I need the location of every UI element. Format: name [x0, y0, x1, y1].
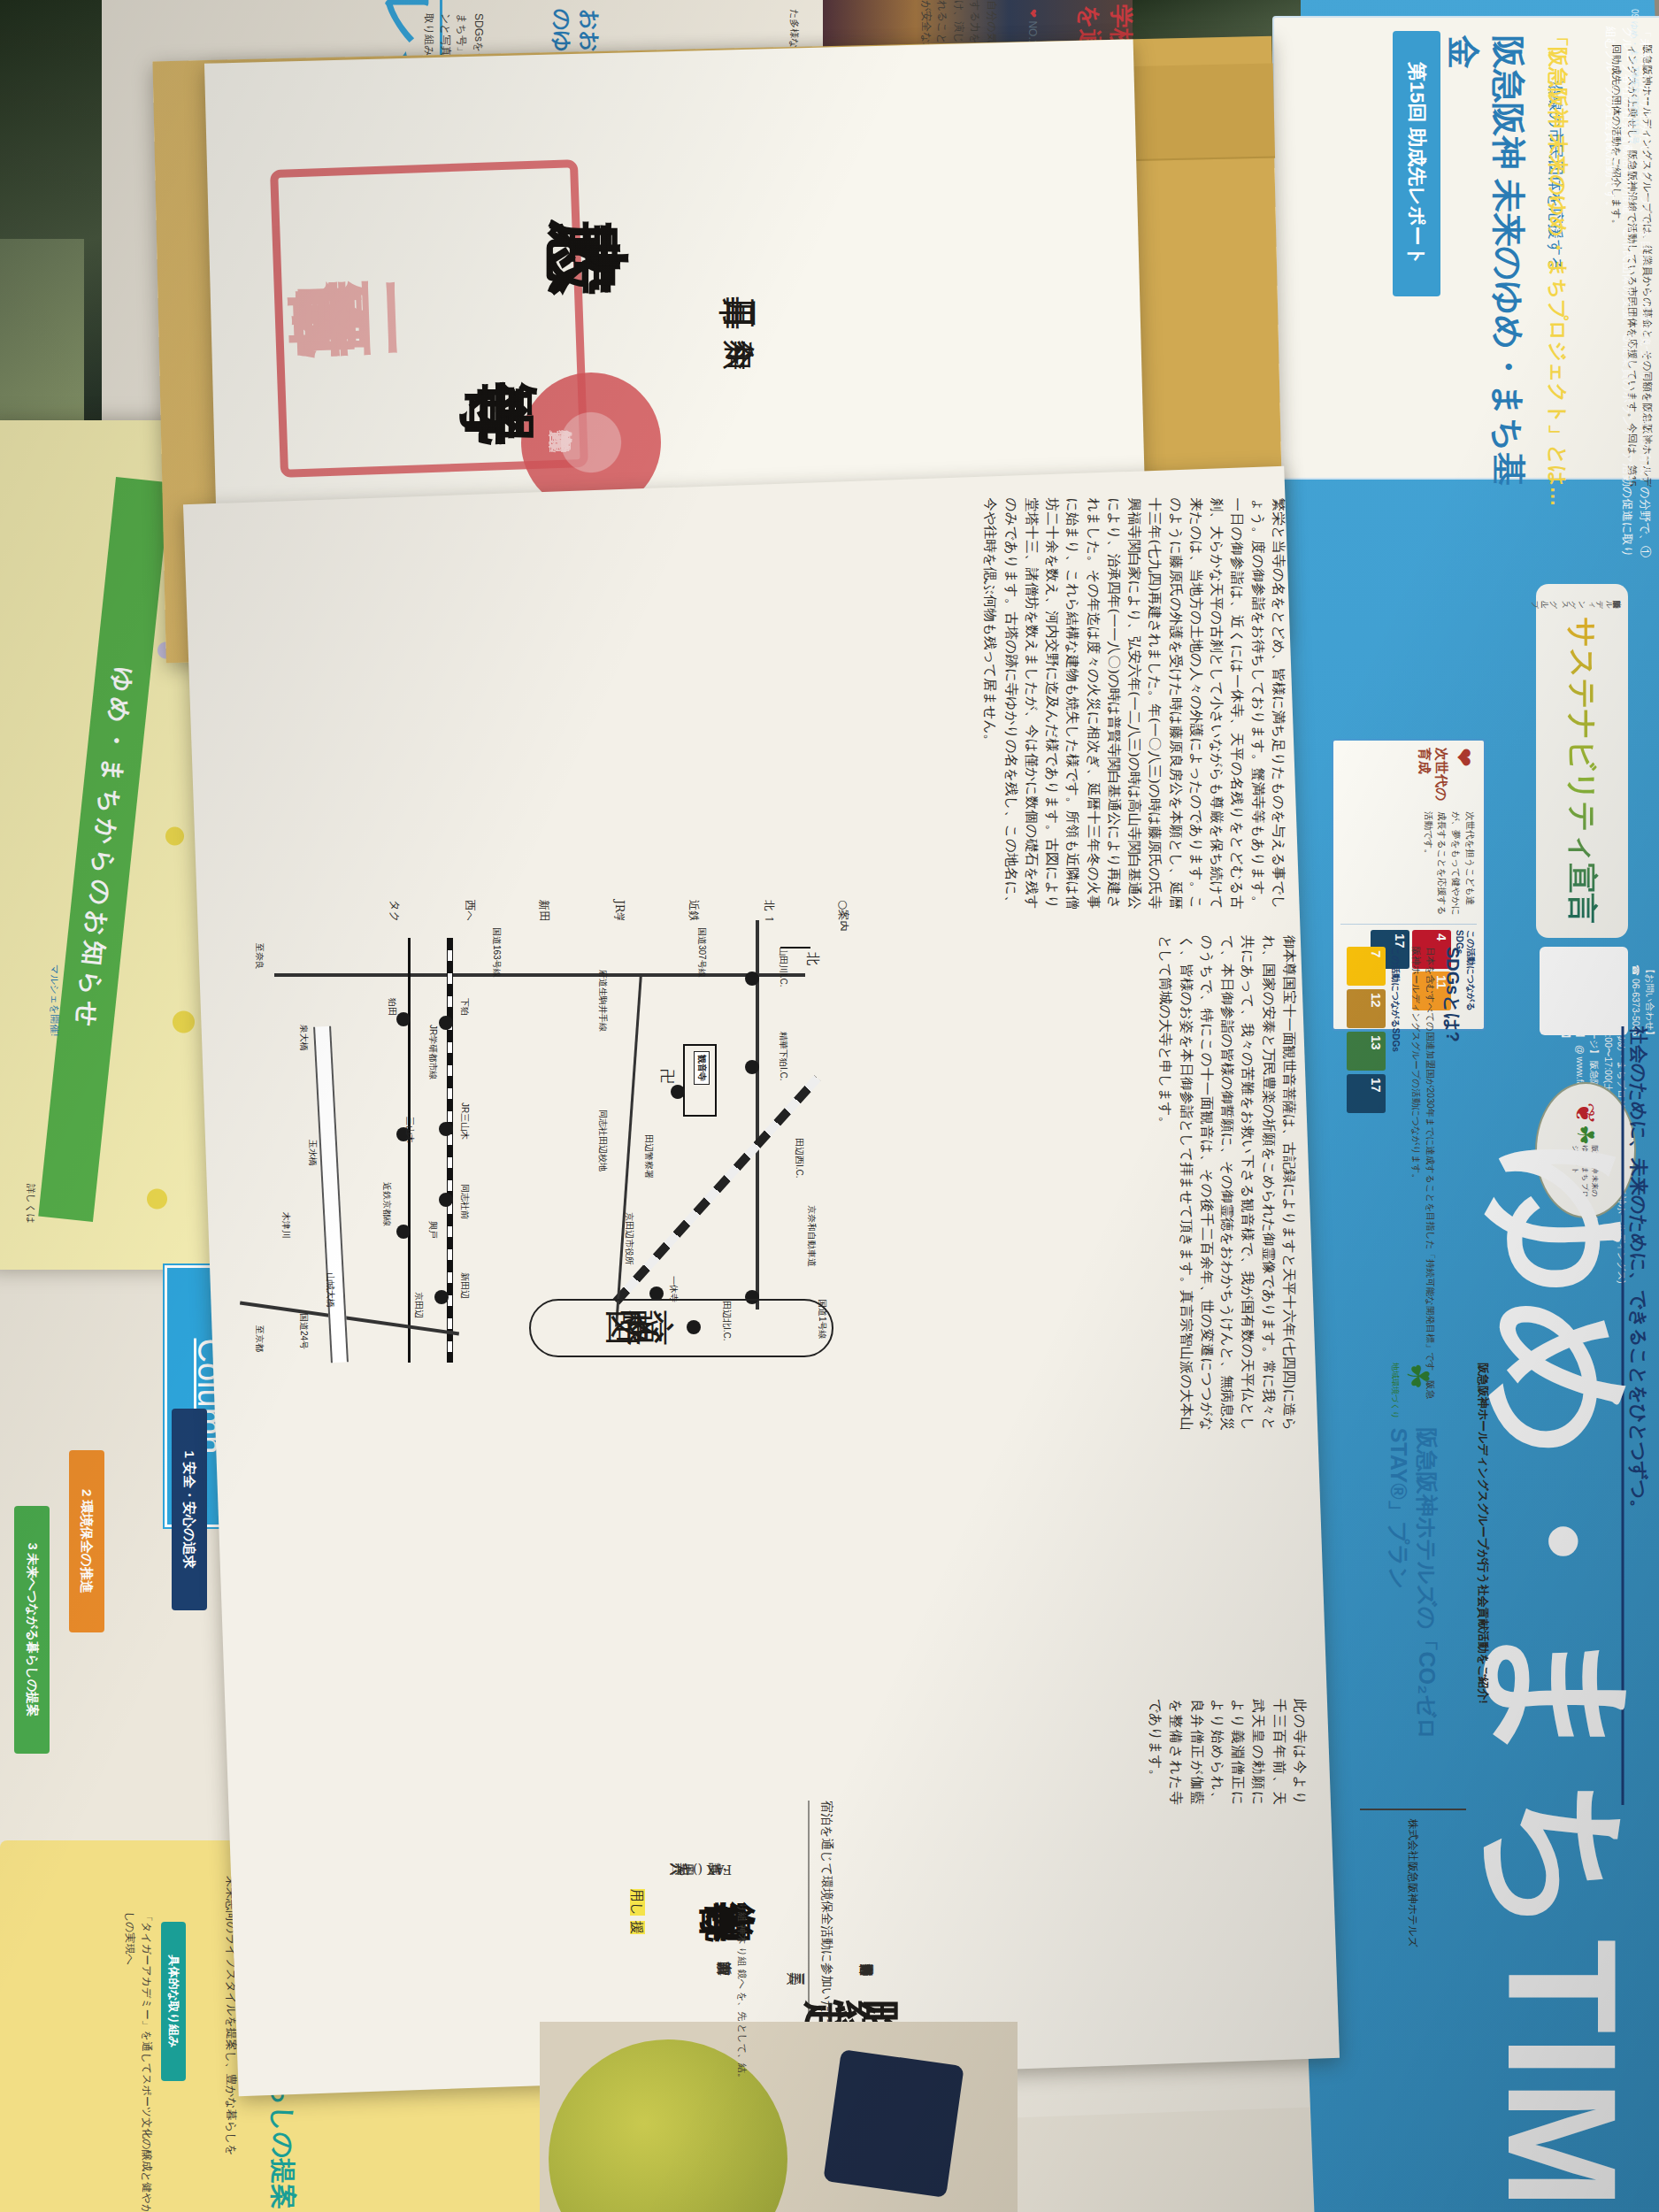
engi-history-a: 繁栄と当寺の名をとどめ、皆様に満ち足りたものを与える事でしょう。度の御参詣をお待… — [567, 498, 1288, 910]
map-label: 同志社田辺校地 — [596, 1110, 609, 1171]
jisedai-heart-icon: ❤ — [1449, 748, 1477, 804]
goshuin-temple-chars: 観音寺 — [288, 365, 588, 457]
map-node — [671, 1085, 685, 1099]
hotels-category: 地域環境づくり — [1390, 1363, 1402, 1419]
map-label: 京奈和自動車道 — [805, 1205, 818, 1267]
sdg-icon: 7 — [1348, 947, 1386, 986]
map-label: 北 — [804, 952, 821, 965]
map-label: 新田辺 — [458, 1272, 471, 1299]
theme-ribbon: 2 環境保全の推進 — [69, 1450, 104, 1632]
cover-about-body: 「未来にわたり住みたいまち」づくりを目指し、「地域環境づくり」「次世代の育成」の… — [1558, 27, 1654, 557]
map-label: 国道24号 — [297, 1313, 310, 1349]
sdgs-body: 日本を含むすべての国連加盟国が2030年までに達成することを目指した「持続可能な… — [1409, 947, 1438, 1407]
column-more-link: 詳しくは — [19, 1184, 37, 1272]
logo-butterfly-icon: ❦ — [1571, 1102, 1601, 1125]
left-leaf-photo — [0, 239, 84, 451]
masthead-title-text: ゆめ・まちTIMES — [1476, 1141, 1648, 2212]
goshuin-main-chars: 大悲殿 — [310, 212, 690, 310]
engi-history-lead: 此の寺は今より千三百年前、天武天皇の勅願により義淵僧正により始められ、良弁僧正が… — [885, 1699, 1310, 1805]
map-rail-kintetsu — [408, 938, 411, 1363]
map-label: 興戸 — [426, 1221, 439, 1239]
hotels-publisher: 株式会社阪急阪神ホテルズ — [1406, 1819, 1421, 1947]
traffic-map: 北国道307号線山田川I.C.精華下狛I.C.田辺西I.C.京奈和自動車道国道1… — [239, 920, 841, 1380]
map-label: 玉水橋 — [306, 1140, 319, 1166]
map-label: 京田辺市役所 — [623, 1212, 635, 1265]
pickup-subheading: 具体的な取り組み — [161, 1922, 186, 2081]
map-label: 山田川I.C. — [777, 947, 789, 987]
photo-of-documents: SDGsトレイン おおさかATCグリーンエコプラザ トレイン「未来のゆめ・まち号… — [0, 0, 1659, 2212]
fund-title: 阪急阪神 未来のゆめ・まち基金 — [1481, 35, 1531, 495]
jisedai-title: 次世代の育成 — [1416, 748, 1449, 804]
map-label: 田辺警察署 — [642, 1134, 655, 1179]
map-label: 三山木 — [403, 1117, 416, 1143]
map-node — [439, 1122, 453, 1136]
sdg-icon: 12 — [1348, 989, 1386, 1028]
map-label: 京田辺 — [412, 1292, 425, 1318]
temple-phone: 電話・FAX 〇七七四(六二)〇六六八 — [537, 1842, 732, 1878]
map-node — [396, 1012, 411, 1026]
hotels-intro: 阪急阪神ホールディングスグループが行う社会貢献活動をご紹介! — [1475, 1363, 1491, 2088]
map-title-oval: 交通略図 — [529, 1299, 833, 1357]
map-node — [745, 1060, 759, 1074]
map-label: 同志社前 — [458, 1184, 471, 1219]
map-node — [396, 1225, 411, 1239]
theme-ribbon: 1 安全・安心の追求 — [172, 1409, 207, 1610]
highlighted-word: 援 — [630, 1921, 645, 1934]
map-node — [439, 1193, 453, 1207]
qr-code — [1540, 947, 1628, 1035]
map-label: 国道307号線 — [695, 927, 708, 978]
sdg-icon: 17 — [1348, 1074, 1386, 1113]
map-label: JR三山木 — [458, 1102, 471, 1140]
map-label: 至京都 — [253, 1325, 265, 1352]
bottom-photo — [540, 2022, 1018, 2212]
fund-report-ribbon: 第15回 助成先レポート — [1393, 31, 1440, 296]
tiny-fragments: り組 神木 り組 鏡へ を、先 として、結。 — [678, 1902, 749, 2168]
map-node — [434, 1290, 449, 1304]
map-label: 田辺西I.C. — [793, 1138, 805, 1179]
sdg-icon: 13 — [1348, 1032, 1386, 1071]
map-label: 近鉄京都線 — [380, 1182, 393, 1226]
map-label: 観音寺 — [694, 1051, 710, 1085]
engi-history-b: 御本尊国宝十一面観世音菩薩は、古記録によりますと天平十六年(七四四)に造られ、国… — [852, 935, 1299, 1431]
sustainability-badge: 阪急阪神ホールディングスグループ サステナビリティ宣言 — [1536, 584, 1628, 938]
clover-child-icon: ☘ — [1402, 1363, 1437, 1419]
highlight-fragments: 用し援 — [615, 1889, 645, 2013]
map-label: 府道生駒井手線 — [596, 970, 609, 1032]
sustainability-badge-main: サステナビリティ宣言 — [1562, 617, 1602, 923]
map-label: 泉大橋 — [297, 1025, 310, 1051]
hotels-divider — [1360, 1809, 1466, 1810]
map-road-r163 — [274, 973, 805, 977]
sustainability-badge-small: 阪急阪神ホールディングスグループ — [1537, 598, 1627, 610]
map-road-r24 — [240, 1302, 459, 1336]
heart-icon: ❤ — [1026, 9, 1039, 20]
hotels-title: 阪急阪神ホテルズの「CO₂ゼロSTAY®」プラン — [1385, 1428, 1442, 1800]
map-title-text: 交通略図 — [657, 1303, 706, 1353]
sdgs-heading: SDGsとは? — [1440, 947, 1464, 1407]
map-label: JR学研都市線 — [426, 1025, 439, 1079]
map-label: 国道163号線 — [490, 927, 503, 978]
jisedai-body: 次世代を担うこども達が、夢をもって健やかに成長することを応援する活動です。 — [1340, 811, 1477, 917]
map-label: 卍 — [657, 1069, 678, 1084]
announce-fragment: マルシェを開催! — [42, 964, 61, 1230]
map-label: 下狛 — [458, 998, 471, 1016]
map-node — [439, 1016, 453, 1030]
map-node — [745, 972, 759, 986]
map-expressway — [613, 1075, 821, 1304]
theme-ribbon: 3 未来へつながる暮らしの提案 — [14, 1506, 50, 1754]
pickup-body: 「タイガーアカデミー」を通してスポーツ文化の醸成と健やかな暮らしの実現へ — [58, 1911, 155, 2212]
map-label: 精華下狛I.C. — [777, 1032, 789, 1081]
map-label: 山城大橋 — [324, 1272, 336, 1308]
green-chair-photo — [549, 2039, 787, 2212]
sdgs-icons: 7121317 — [1348, 947, 1386, 1407]
map-label: 狛田 — [386, 998, 398, 1016]
map-label: 木津川 — [280, 1212, 292, 1239]
sdgs-caption: この活動につながるSDGs — [1392, 947, 1402, 1052]
map-label: 至奈良 — [253, 943, 265, 970]
navy-cushion-photo — [823, 2049, 964, 2198]
sdgs-section: SDGsとは? 日本を含むすべての国連加盟国が2030年までに達成することを目指… — [1296, 947, 1464, 1407]
highlighted-word: 用し — [630, 1889, 645, 1916]
